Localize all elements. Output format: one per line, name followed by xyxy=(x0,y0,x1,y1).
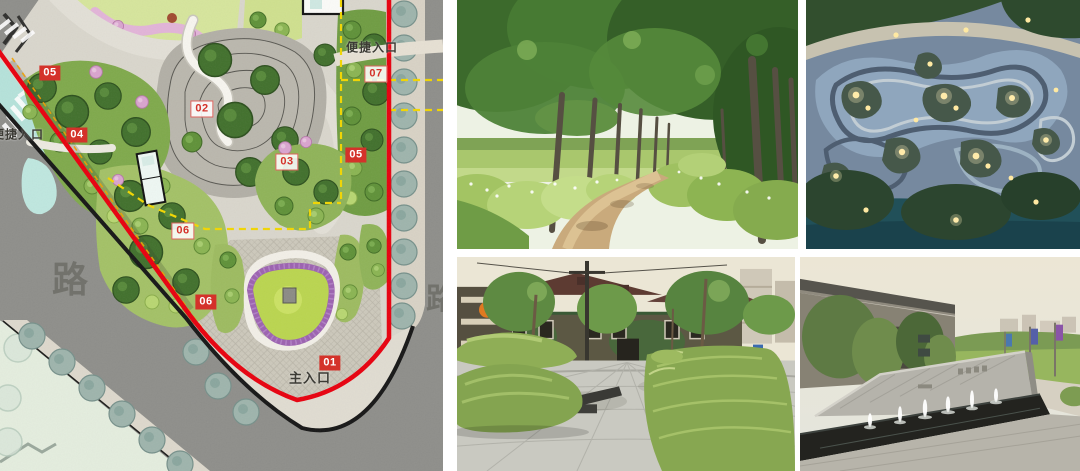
entry-water-feature-drawing xyxy=(800,257,1080,471)
photo-entry-water-feature xyxy=(800,257,1080,471)
hedge-mound-plaza-drawing xyxy=(457,257,795,471)
photo-hedge-mound-plaza xyxy=(457,257,795,471)
photo-tree-lined-lane xyxy=(457,0,798,249)
presentation-slide: 050702040503060601便捷入口便捷入口主入口路路 xyxy=(0,0,1080,471)
site-plan-drawing xyxy=(0,0,443,471)
tree-lined-lane-drawing xyxy=(457,0,798,249)
aerial-night-park-drawing xyxy=(806,0,1080,249)
site-plan-figure: 050702040503060601便捷入口便捷入口主入口路路 xyxy=(0,0,443,471)
photo-aerial-night-park xyxy=(806,0,1080,249)
